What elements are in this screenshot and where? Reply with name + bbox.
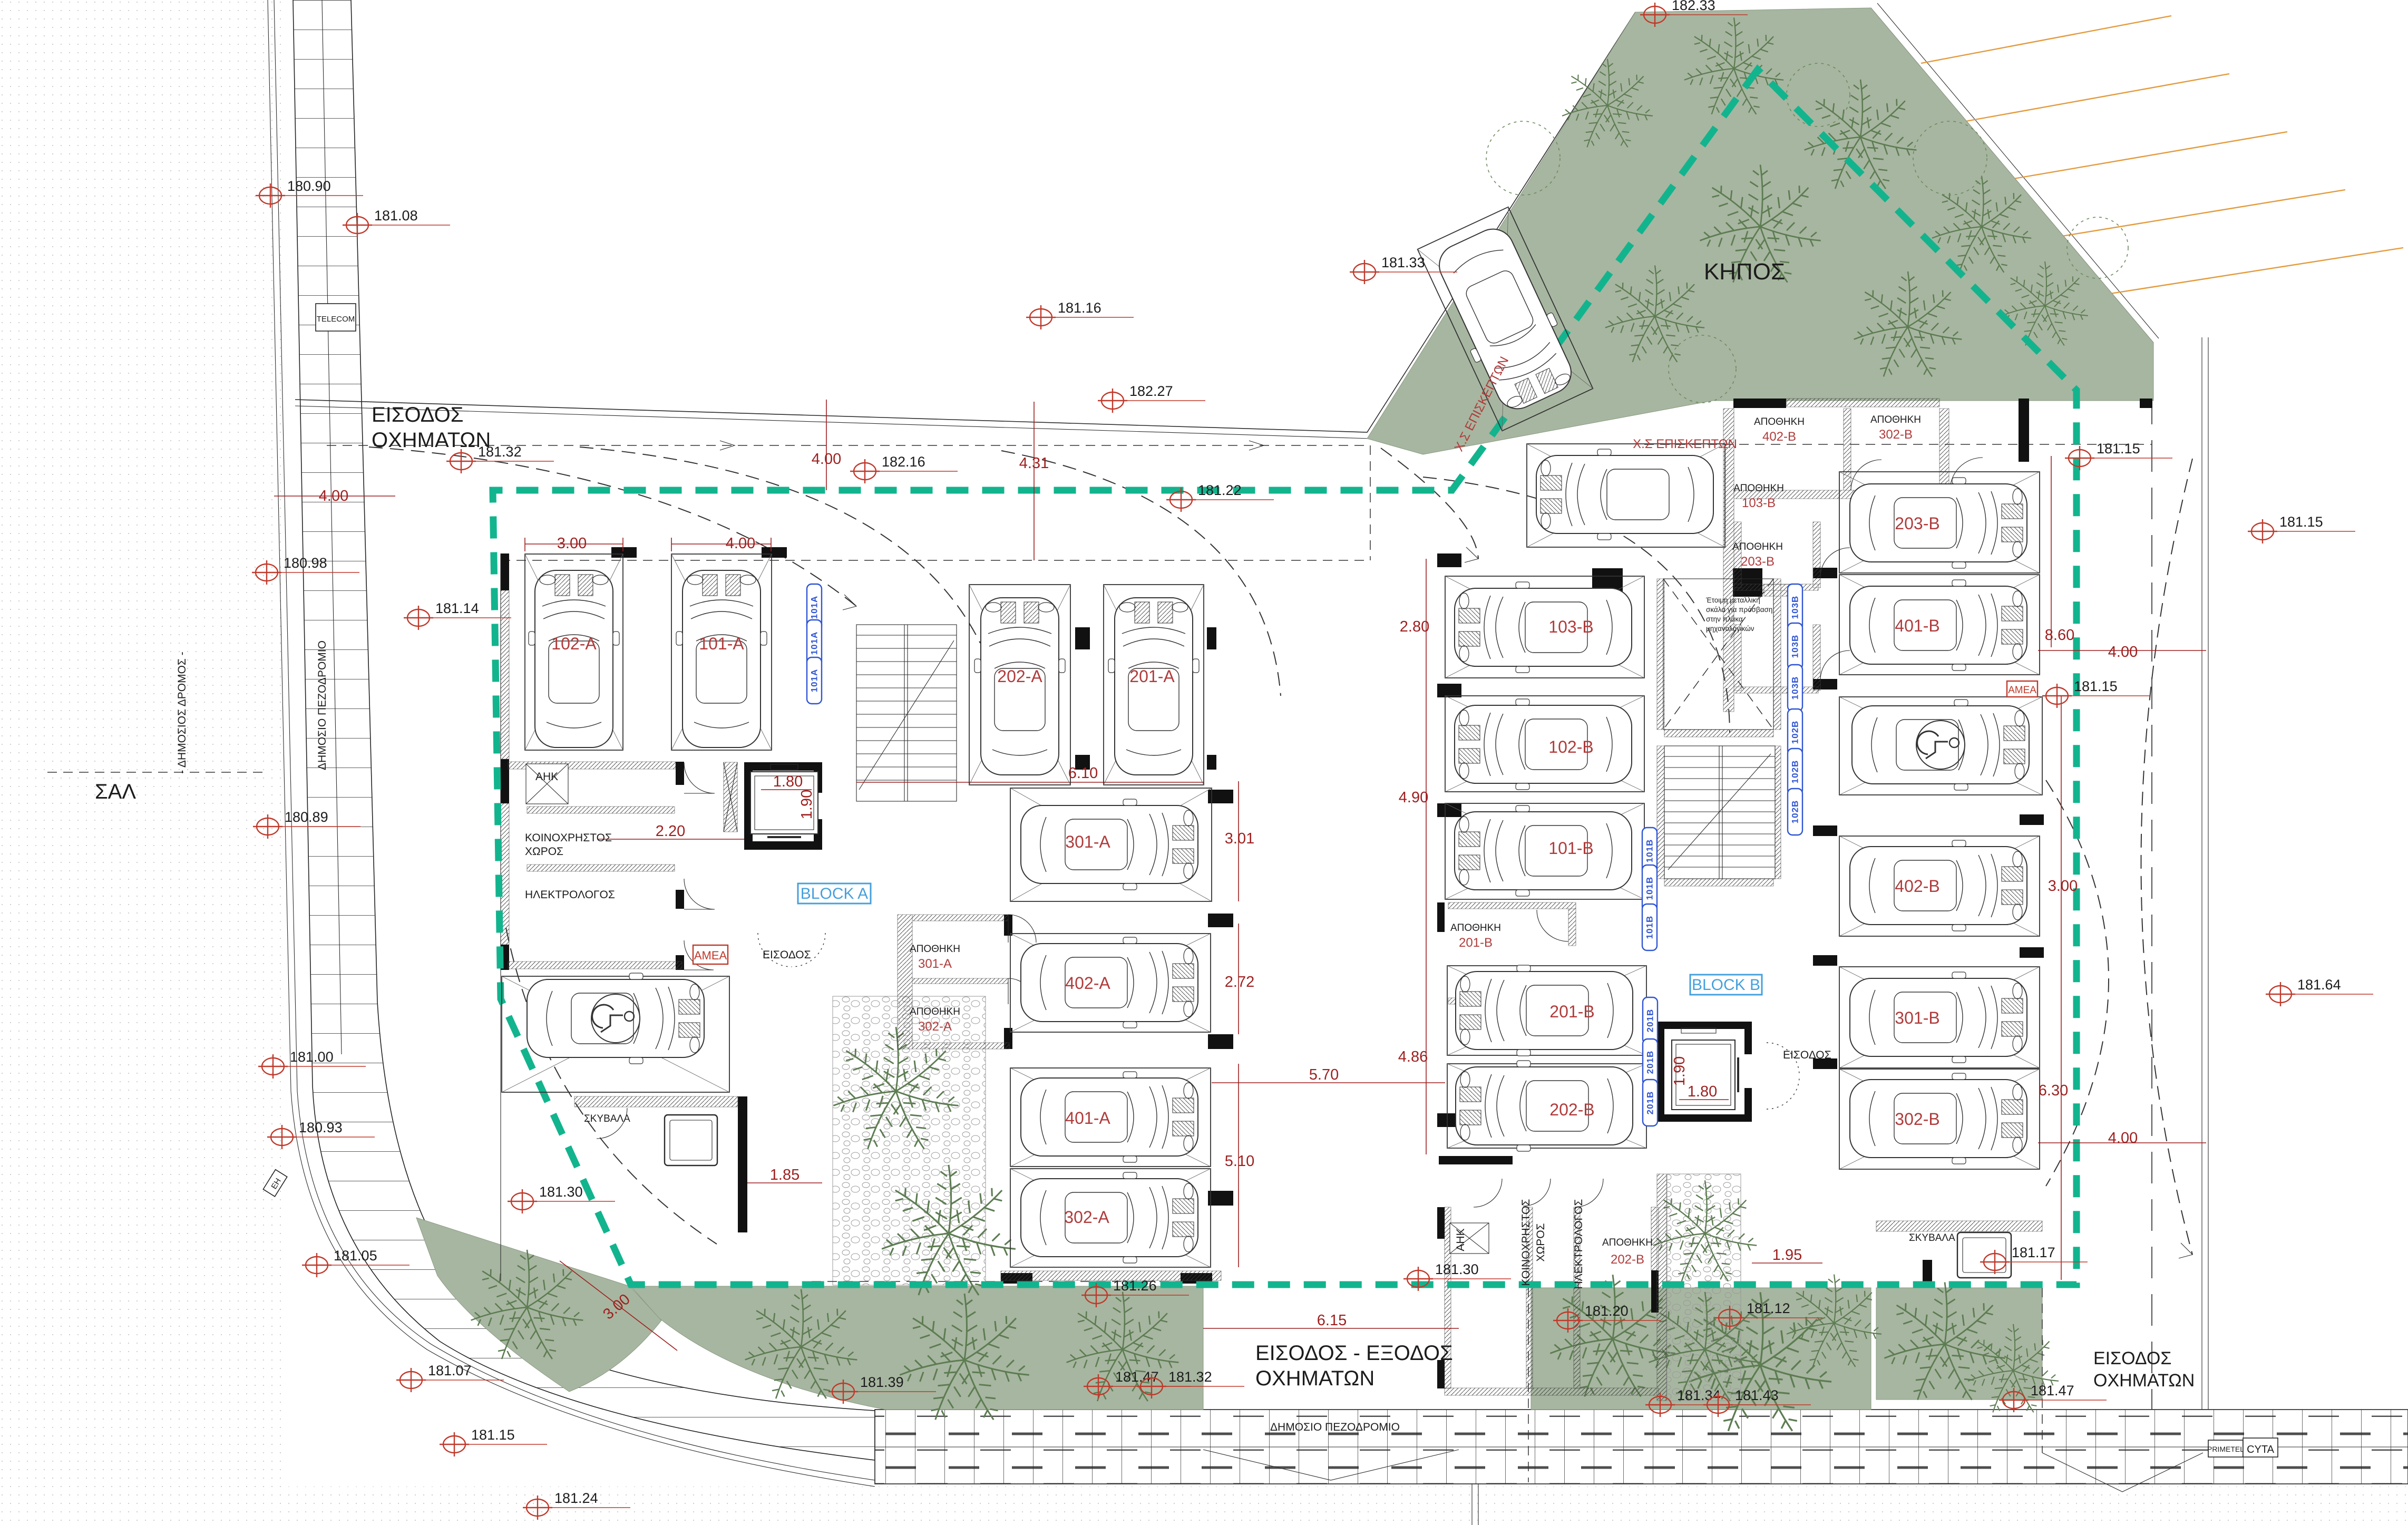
plan-label: 201-B <box>1459 936 1493 950</box>
boxed-label-text: ΑΜΕΑ <box>2008 685 2036 696</box>
elevation-value: 181.14 <box>435 600 479 616</box>
boxed-label-text: PRIMETEL <box>2207 1445 2244 1453</box>
dimension-label: 6.30 <box>2039 1082 2068 1099</box>
plan-label: ΧΩΡΟΣ <box>525 846 563 858</box>
elevation-value: 180.89 <box>285 809 328 825</box>
dimension-label: 6.15 <box>1317 1312 1347 1329</box>
plan-label: ΧΩΡΟΣ <box>1535 1223 1547 1261</box>
dimension-label: 4.00 <box>319 488 348 504</box>
plan-label: ΔΗΜΟΣΙΟ ΠΕΖΟΔΡΟΜΙΟ <box>1270 1421 1400 1433</box>
plan-label: 301-A <box>918 957 952 971</box>
unit-badge: 103B <box>1788 623 1802 669</box>
plan-label: Χ.Σ ΕΠΙΣΚΕΠΤΩΝ <box>1633 437 1737 451</box>
elevation-marker: 181.15 <box>2042 678 2150 708</box>
elevation-marker: 182.16 <box>850 454 958 483</box>
plan-label: ΑΠΟΘΗΚΗ <box>1870 414 1921 425</box>
dimension-label: 3.01 <box>1225 830 1254 847</box>
elevation-value: 181.39 <box>860 1374 904 1390</box>
plan-label: ΟΧΗΜΑΤΩΝ <box>2093 1371 2195 1391</box>
car-icon <box>1852 700 2029 790</box>
car-icon <box>1456 1061 1633 1151</box>
parking-space-label: 201-A <box>1129 667 1175 686</box>
car-icon <box>529 570 619 747</box>
elevation-value: 181.07 <box>428 1363 472 1378</box>
plan-label: ΟΧΗΜΑΤΩΝ <box>372 429 491 452</box>
parking-space-101-B <box>1445 803 1644 899</box>
unit-badge: 101A <box>807 657 822 704</box>
parking-space-label: 202-A <box>997 667 1042 686</box>
boxed-label-BLOCK B: BLOCK B <box>1690 975 1762 995</box>
plan-label: ΑΠΟΘΗΚΗ <box>910 1006 960 1017</box>
elevation-value: 181.17 <box>2012 1245 2055 1260</box>
parking-space-label: 402-A <box>1065 974 1110 993</box>
plan-label: ΕΙΣΟΔΟΣ <box>2093 1348 2171 1368</box>
car-icon <box>527 973 704 1064</box>
plan-label: ΕΙΣΟΔΟΣ <box>763 949 811 961</box>
unit-badge-label: 101A <box>810 632 820 655</box>
dimension-label: 1.90 <box>1671 1056 1688 1086</box>
elevation-value: 181.33 <box>1381 255 1425 270</box>
boxed-label-text: TELECOM <box>317 315 355 324</box>
plan-label: 203-B <box>1741 555 1775 569</box>
parking-space-label: 401-B <box>1895 616 1939 635</box>
plan-label: 402-B <box>1762 430 1796 444</box>
plan-label: ΑΠΟΘΗΚΗ <box>1754 416 1805 428</box>
parking-space-201-B <box>1447 965 1646 1056</box>
boxed-label-PRIMETEL: PRIMETEL <box>2207 1440 2244 1457</box>
parking-space-401-A <box>1010 1068 1211 1167</box>
plan-label: ΟΧΗΜΑΤΩΝ <box>1255 1367 1374 1390</box>
dimension-label: 4.00 <box>812 451 841 468</box>
plan-label: ΔΗΜΟΣΙΟ ΠΕΖΟΔΡΟΜΙΟ <box>316 640 328 770</box>
unit-badge-label: 201B <box>1645 1051 1655 1074</box>
plan-label: ΣΚΥΒΑΛΑ <box>1909 1232 1955 1244</box>
dimension-label: 5.70 <box>1309 1066 1339 1083</box>
unit-badge: 201B <box>1643 1039 1658 1085</box>
plan-label: ΑΗΚ <box>535 771 558 783</box>
elevation-value: 182.27 <box>1129 383 1173 399</box>
boxed-label-text: CYTA <box>2247 1444 2275 1455</box>
parking-space-label: 203-B <box>1895 514 1939 533</box>
car-icon <box>1456 965 1633 1056</box>
dimension-label: 3.00 <box>557 535 587 552</box>
unit-badge-label: 101B <box>1645 877 1655 900</box>
elevation-value: 181.22 <box>1198 482 1242 498</box>
plan-label: ΗΛΕΚΤΡΟΛΟΓΟΣ <box>525 889 615 901</box>
plan-label: ΚΟΙΝΟΧΡΗΣΤΟΣ <box>1520 1199 1532 1286</box>
boxed-label-BLOCK A: BLOCK A <box>798 883 871 904</box>
parking-space-103-B <box>1445 576 1644 678</box>
parking-space-label: 102-A <box>551 634 597 653</box>
dimension-label: 4.31 <box>1019 455 1049 472</box>
parking-space-visitor-2 <box>1527 444 1725 547</box>
south-sidewalk <box>875 1410 2408 1484</box>
parking-space-301-A <box>1010 788 1212 901</box>
dimension-label: 1.85 <box>770 1167 800 1183</box>
elevation-value: 181.24 <box>554 1490 598 1506</box>
east-road-edge <box>2152 337 2208 1410</box>
elevation-value: 181.15 <box>2097 441 2140 456</box>
unit-badge: 201B <box>1643 1080 1658 1126</box>
plan-label: ΚΟΙΝΟΧΡΗΣΤΟΣ <box>525 832 612 844</box>
parking-space-label: 101-B <box>1548 839 1593 858</box>
parking-space-402-A <box>1010 934 1211 1032</box>
elevation-value: 182.33 <box>1672 0 1715 13</box>
elevation-value: 181.16 <box>1058 300 1101 316</box>
boxed-label-ΑΜΕΑ: ΑΜΕΑ <box>2007 681 2037 697</box>
boxed-label-text: ΑΜΕΑ <box>694 949 727 962</box>
car-icon <box>1455 699 1632 790</box>
car-icon <box>1108 598 1199 775</box>
car-icon <box>1536 449 1713 540</box>
dimension-label: 5.10 <box>1225 1153 1254 1170</box>
dimension-label: 4.00 <box>726 535 755 552</box>
plan-label: ΑΠΟΘΗΚΗ <box>1733 483 1784 494</box>
elevation-marker: 181.15 <box>2065 441 2172 470</box>
plan-label: ΕΙΣΟΔΟΣ <box>372 403 464 426</box>
elevation-marker: 181.15 <box>2248 514 2355 543</box>
plan-label: ΑΠΟΘΗΚΗ <box>910 944 960 955</box>
unit-badge-label: 101A <box>810 669 820 693</box>
elevation-value: 181.26 <box>1113 1278 1157 1294</box>
parking-space-label: 301-B <box>1895 1008 1939 1027</box>
elevation-marker: 181.22 <box>1166 482 1274 512</box>
parking-space-302-A <box>1010 1169 1211 1267</box>
elevation-value: 180.93 <box>299 1120 343 1135</box>
unit-badge-label: 103B <box>1790 676 1800 700</box>
unit-badge-label: 103B <box>1790 596 1800 619</box>
dimension-label: 4.00 <box>2108 644 2138 660</box>
plan-label: ΣΑΛ <box>95 780 136 803</box>
elevation-marker: 181.16 <box>1026 300 1134 329</box>
dimension-label: 1.80 <box>773 773 803 790</box>
elevation-value: 181.15 <box>2074 678 2118 694</box>
boxed-label-text: BLOCK A <box>801 885 868 902</box>
parking-space-label: 401-A <box>1065 1109 1110 1128</box>
parking-space-label: 103-B <box>1548 617 1593 636</box>
plan-label: 302-A <box>918 1019 952 1034</box>
parking-space-202-B <box>1447 1061 1646 1151</box>
elevation-value: 181.32 <box>1168 1369 1212 1385</box>
boxed-label-text: BLOCK B <box>1692 976 1760 994</box>
car-icon <box>1455 582 1632 673</box>
plan-label: ΚΗΠΟΣ <box>1704 259 1785 285</box>
dimension-label: 1.80 <box>1688 1083 1717 1100</box>
parking-space-label: 302-A <box>1064 1208 1109 1227</box>
parking-space-102-B <box>1445 696 1644 792</box>
dimension-label: 4.00 <box>2108 1130 2138 1147</box>
elevation-value: 181.08 <box>374 208 418 224</box>
plan-label: ΑΠΟΘΗΚΗ <box>1450 922 1501 934</box>
plan-label: 103-B <box>1742 496 1776 510</box>
elevation-value: 180.90 <box>287 178 331 194</box>
elevation-value: 181.30 <box>1435 1261 1479 1277</box>
boxed-label-TELECOM: TELECOM <box>316 304 356 331</box>
car-icon <box>676 570 767 747</box>
unit-badge-label: 102B <box>1790 800 1800 824</box>
elevation-marker: 181.64 <box>2266 977 2373 1006</box>
plan-label: στην πλάκα <box>1706 615 1743 623</box>
site-plan-page: 102-A101-A202-A201-A301-A402-A401-A302-A… <box>0 0 2408 1525</box>
parking-space-label: 102-B <box>1548 737 1593 756</box>
elevation-marker: 182.27 <box>1098 383 1205 413</box>
plan-label: ΑΠΟΘΗΚΗ <box>1732 541 1783 552</box>
parking-space-label: 302-B <box>1895 1110 1939 1129</box>
parking-space-label: 402-B <box>1895 877 1939 896</box>
parking-space-AMEA-A <box>502 973 729 1092</box>
elevation-value: 180.98 <box>284 555 327 571</box>
unit-badge-label: 102B <box>1790 721 1800 744</box>
elevation-value: 182.16 <box>882 454 925 470</box>
plan-label: ΕΙΣΟΔΟΣ - ΕΞΟΔΟΣ <box>1255 1342 1453 1365</box>
elevation-value: 181.34 <box>1677 1387 1721 1403</box>
plan-label: ΑΗΚ <box>1455 1228 1467 1251</box>
elevation-value: 181.20 <box>1585 1303 1629 1319</box>
unit-badge-label: 101A <box>810 596 820 619</box>
elevation-value: 181.47 <box>2031 1383 2074 1398</box>
car-icon <box>974 598 1065 775</box>
unit-badge: 101B <box>1642 904 1657 950</box>
elevation-value: 181.15 <box>471 1427 515 1443</box>
elevation-value: 181.64 <box>2297 977 2341 993</box>
parking-space-label: 301-A <box>1065 832 1110 851</box>
plan-label: - ΔΗΜΟΣΙΟΣ ΔΡΟΜΟΣ - <box>176 652 188 774</box>
dimension-label: 1.90 <box>798 790 815 819</box>
dimension-label: 8.60 <box>2045 627 2074 644</box>
dimension-label: 6.10 <box>1068 765 1098 782</box>
plan-label: ΑΠΟΘΗΚΗ <box>1602 1237 1653 1248</box>
unit-badge-label: 101B <box>1645 839 1655 863</box>
plan-label: ΕΙΣΟΔΟΣ <box>1783 1049 1831 1061</box>
plan-label: 302-B <box>1879 428 1913 442</box>
car-icon <box>1021 1172 1198 1263</box>
unit-badge-label: 101B <box>1645 916 1655 939</box>
dimension-label: 2.72 <box>1225 974 1254 990</box>
plan-label: Έτοιμη μεταλλική <box>1705 596 1760 604</box>
elevation-value: 181.12 <box>1747 1300 1790 1316</box>
elevation-value: 181.00 <box>290 1049 334 1065</box>
unit-badge-label: 102B <box>1790 760 1800 784</box>
parking-space-AMEA-B <box>1839 697 2042 795</box>
dimension-label: 2.20 <box>656 823 685 840</box>
boxed-label-ΑΜΕΑ: ΑΜΕΑ <box>693 945 728 964</box>
elevation-marker: 181.08 <box>343 208 450 237</box>
dimension-label: 4.90 <box>1399 789 1428 806</box>
unit-badge: 103B <box>1788 665 1802 711</box>
plan-label: σκάλα για πρόσβαση <box>1706 606 1772 614</box>
stairs-block-a <box>856 625 957 801</box>
plan-label: ΗΛΕΚΤΡΟΛΟΓΟΣ <box>1573 1199 1585 1289</box>
unit-badge-label: 201B <box>1645 1091 1655 1115</box>
stairs-block-b <box>1664 746 1775 879</box>
elevation-marker: 181.30 <box>508 1184 615 1213</box>
car-icon <box>1455 805 1632 896</box>
dimension-label: 3.00 <box>2048 878 2078 895</box>
elevation-value: 181.05 <box>334 1248 377 1264</box>
boxed-label-CYTA: CYTA <box>2243 1438 2278 1457</box>
unit-badge-label: 201B <box>1645 1009 1655 1033</box>
elevation-value: 181.43 <box>1735 1387 1779 1403</box>
plan-label: ΣΚΥΒΑΛΑ <box>584 1113 630 1124</box>
floor-plan-canvas: 102-A101-A202-A201-A301-A402-A401-A302-A… <box>0 0 2408 1525</box>
plan-label: 202-B <box>1611 1252 1644 1267</box>
unit-badge-label: 103B <box>1790 635 1800 658</box>
unit-badge: 201B <box>1643 997 1658 1044</box>
plan-label: μηχανολογικών <box>1706 625 1754 633</box>
unit-badge: 102B <box>1788 789 1802 835</box>
elevation-marker: 181.15 <box>440 1427 547 1456</box>
elevation-value: 181.15 <box>2279 514 2323 530</box>
dimension-label: 1.95 <box>1772 1247 1802 1264</box>
dimension-label: 2.80 <box>1400 618 1429 635</box>
parking-space-label: 101-A <box>699 634 744 653</box>
parking-space-label: 202-B <box>1549 1100 1594 1119</box>
parking-space-label: 201-B <box>1549 1002 1594 1021</box>
elevation-value: 181.47 <box>1115 1369 1159 1385</box>
dimension-label: 4.86 <box>1398 1048 1428 1065</box>
elevation-value: 181.30 <box>539 1184 583 1200</box>
